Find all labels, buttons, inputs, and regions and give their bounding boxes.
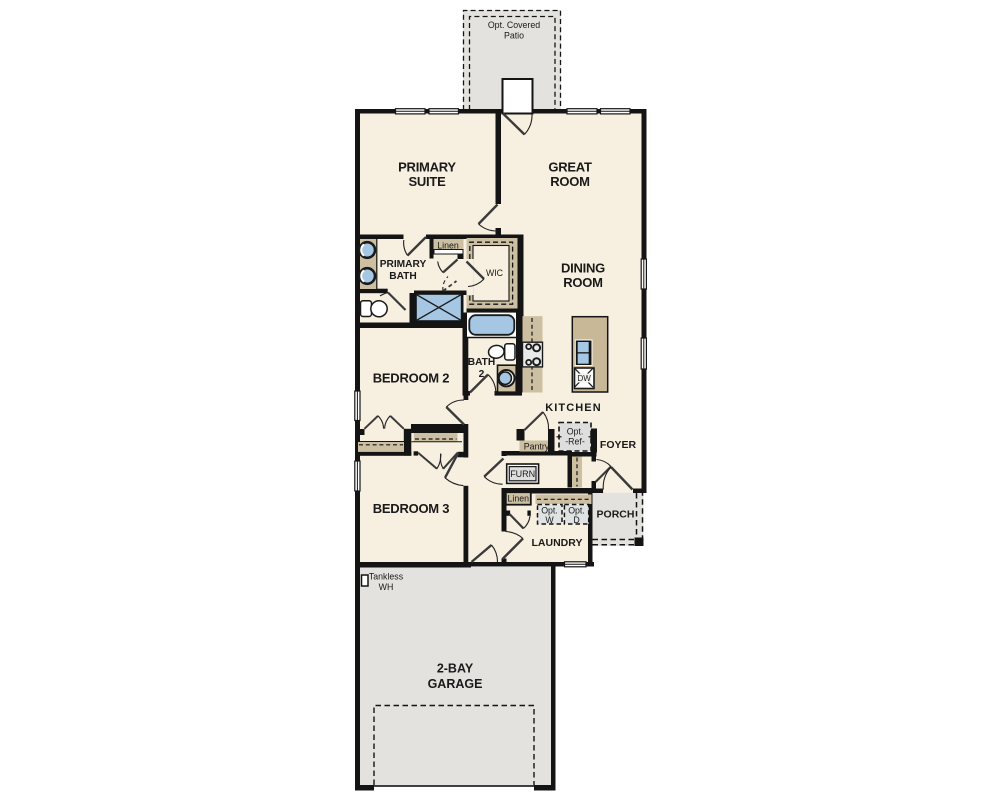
svg-text:BATH: BATH xyxy=(389,271,417,282)
svg-text:Opt.: Opt. xyxy=(541,506,558,516)
svg-text:BEDROOM 3: BEDROOM 3 xyxy=(373,501,450,516)
svg-text:D: D xyxy=(573,515,579,525)
svg-text:PORCH: PORCH xyxy=(597,509,635,521)
svg-text:GARAGE: GARAGE xyxy=(428,677,483,691)
svg-text:-Ref-: -Ref- xyxy=(565,437,585,447)
svg-text:Linen: Linen xyxy=(508,494,530,504)
svg-text:WIC: WIC xyxy=(486,268,504,278)
svg-text:DINING: DINING xyxy=(561,261,605,276)
svg-text:FURN: FURN xyxy=(510,469,535,479)
svg-text:PRIMARY: PRIMARY xyxy=(380,259,427,270)
svg-text:FOYER: FOYER xyxy=(600,439,637,451)
svg-text:Patio: Patio xyxy=(504,31,524,41)
svg-text:BATH: BATH xyxy=(468,357,496,368)
svg-text:Opt.: Opt. xyxy=(567,427,584,437)
svg-text:PRIMARY: PRIMARY xyxy=(398,160,456,175)
svg-text:2-BAY: 2-BAY xyxy=(437,662,474,676)
svg-text:Pantry: Pantry xyxy=(524,442,550,452)
svg-text:Tankless: Tankless xyxy=(369,572,404,582)
svg-text:W: W xyxy=(545,515,554,525)
svg-text:Opt. Covered: Opt. Covered xyxy=(488,20,540,30)
svg-text:WH: WH xyxy=(379,582,394,592)
svg-text:KITCHEN: KITCHEN xyxy=(545,402,602,414)
svg-text:SUITE: SUITE xyxy=(408,174,446,189)
svg-text:ROOM: ROOM xyxy=(550,174,589,189)
svg-text:BEDROOM 2: BEDROOM 2 xyxy=(373,371,450,386)
svg-text:DW: DW xyxy=(578,374,592,383)
svg-text:GREAT: GREAT xyxy=(548,160,592,175)
svg-text:ROOM: ROOM xyxy=(563,275,602,290)
svg-text:LAUNDRY: LAUNDRY xyxy=(532,537,583,549)
svg-text:Linen: Linen xyxy=(437,241,459,251)
svg-text:Opt.: Opt. xyxy=(568,506,585,516)
